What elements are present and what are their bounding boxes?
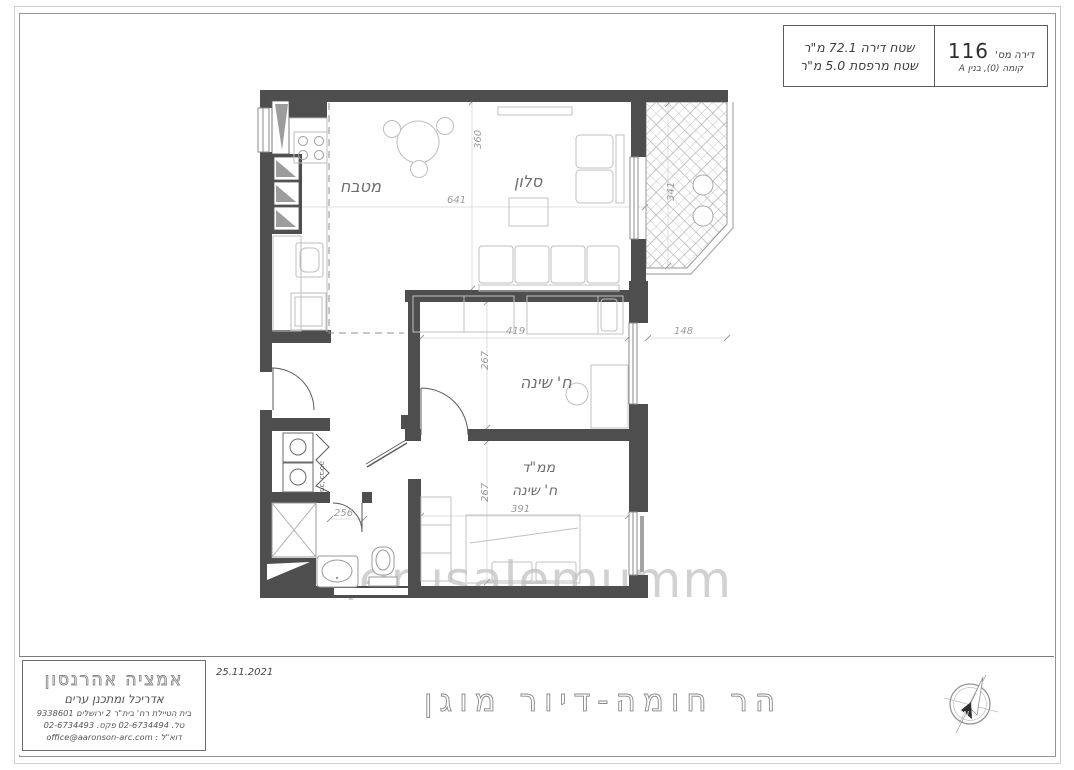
living-room-label: סלון [514, 172, 543, 191]
bedroom-furniture [413, 296, 628, 428]
architect-email: דוא"ל : office@aaronson-arc.com [46, 732, 181, 742]
compass-north-letter: N [963, 710, 969, 719]
dim-living-height: 360 [473, 130, 484, 149]
room-labels: מטבח סלון ח' שינה ממ"ד ח' שינה מכ' כביסה [318, 172, 572, 499]
kitchen-label: מטבח [340, 177, 382, 196]
dim-balcony-depth: 341 [666, 182, 677, 201]
architect-name: אמציה אהרנסון [45, 670, 183, 690]
balcony [646, 102, 733, 274]
area-info-box: שטח דירה 72.1 מ"ר שטח מרפסת 5.0 מ"ר [783, 25, 935, 87]
service-shafts [272, 101, 299, 230]
architect-phone: טל. 02-6734494 פקס. 02-6734493 [44, 720, 185, 730]
apartment-area-line: שטח דירה 72.1 מ"ר [803, 40, 914, 55]
dim-living-width: 641 [447, 195, 466, 206]
apartment-number: 116 [948, 39, 989, 63]
architect-stamp-box: אמציה אהרנסון אדריכל ומתכנן ערים בית הטי… [22, 660, 206, 751]
balcony-area-line: שטח מרפסת 5.0 מ"ר [800, 58, 918, 73]
project-title: הר חומה-דיור מוגן [424, 683, 782, 719]
apartment-number-box: דירה מס' 116 קומה (0), בנין A [934, 25, 1048, 87]
dim-bedroom-width: 419 [506, 326, 525, 337]
north-arrow-icon: N [936, 669, 1006, 739]
dim-mamad-height: 267 [480, 482, 491, 502]
living-room-furniture [479, 107, 624, 291]
bedroom-label: ח' שינה [520, 373, 572, 392]
dim-hallway-width: 256 [334, 508, 353, 519]
title-strip: אמציה אהרנסון אדריכל ומתכנן ערים בית הטי… [19, 656, 1054, 755]
apartment-number-line: דירה מס' 116 [948, 39, 1034, 63]
dim-side-offset: 148 [674, 326, 693, 337]
floor-building-line: קומה (0), בנין A [959, 64, 1023, 74]
dim-mamad-width: 391 [511, 504, 530, 515]
mamad-label: ממ"ד [522, 460, 556, 476]
apartment-label: דירה מס' [995, 50, 1034, 61]
dim-bedroom-height: 267 [480, 350, 491, 370]
architect-address: בית הטיילת רח' בית"ר 2 ירושלים 9338601 [37, 708, 192, 718]
laundry-label: מכ' כביסה [318, 461, 326, 492]
architect-role: אדריכל ומתכנן ערים [64, 692, 163, 706]
floor-plan-drawing: jerusalemumm [250, 80, 750, 600]
mamad-bedroom-label: ח' שינה [512, 483, 558, 499]
drawing-date: 25.11.2021 [216, 667, 273, 678]
